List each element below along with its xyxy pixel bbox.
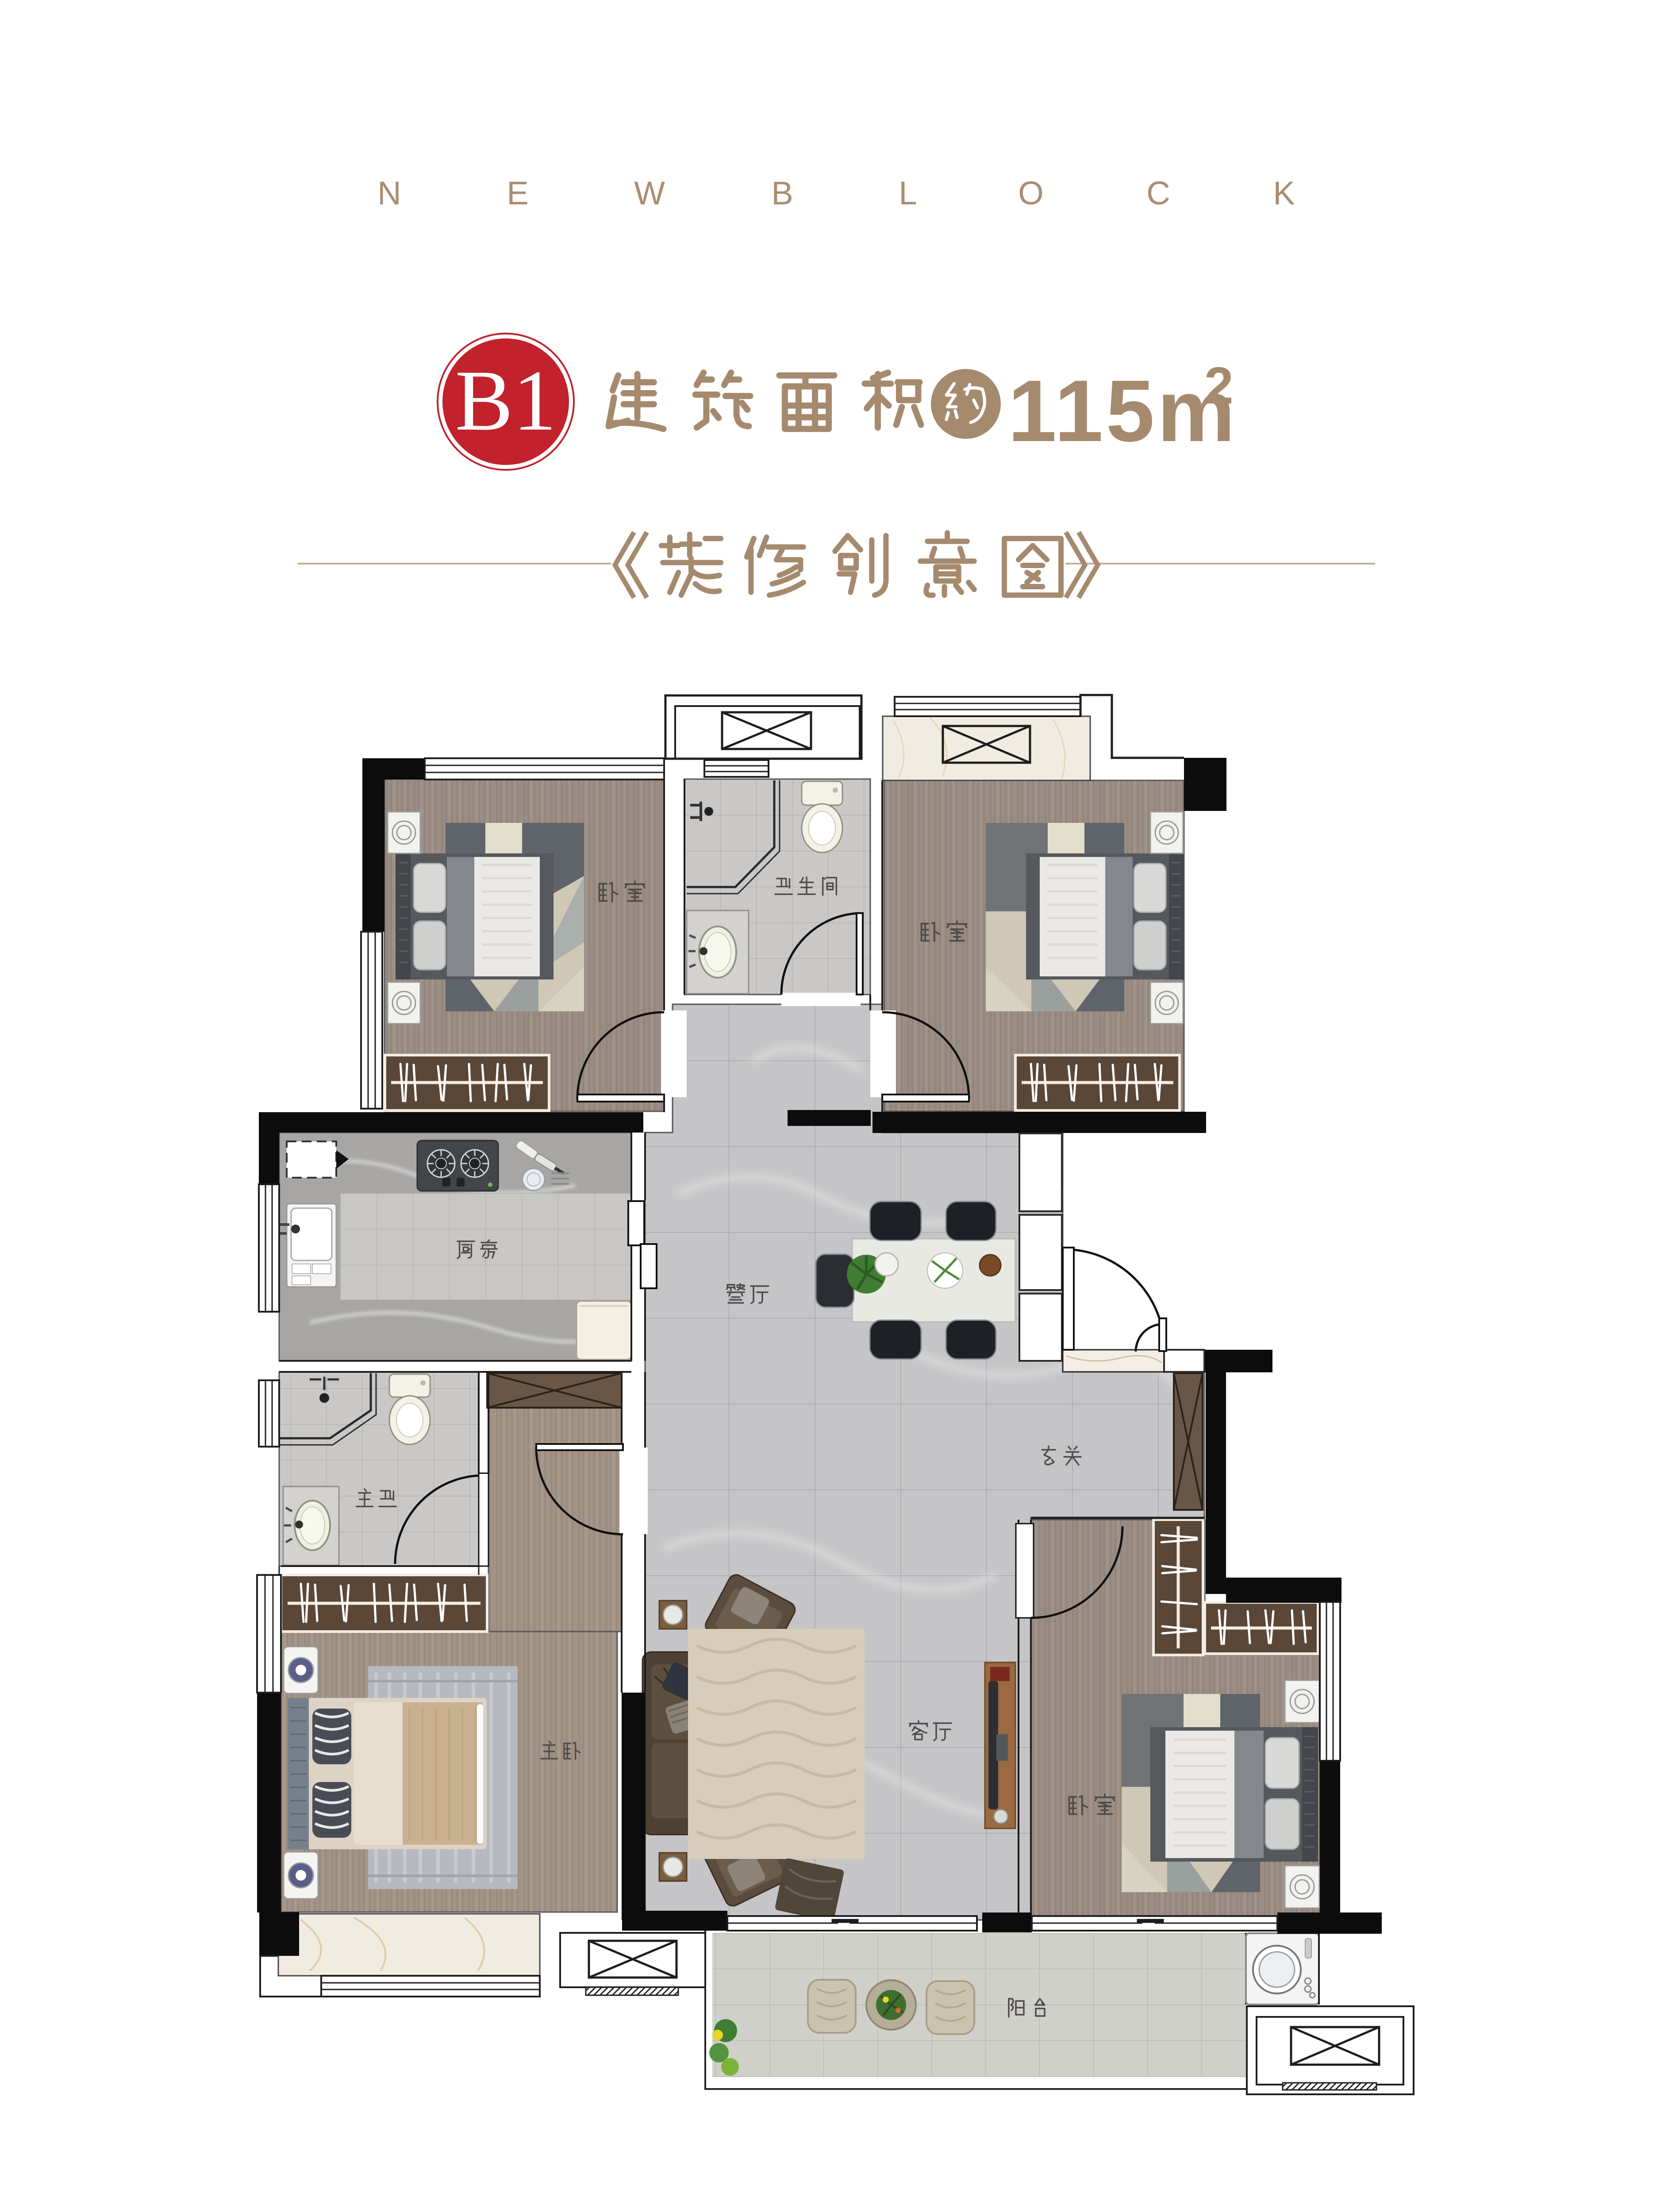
- svg-text:L: L: [899, 175, 917, 211]
- svg-text:B: B: [771, 175, 793, 211]
- svg-text:C: C: [1146, 175, 1170, 211]
- svg-text:E: E: [507, 175, 528, 211]
- svg-text:N: N: [377, 175, 401, 211]
- svg-text:K: K: [1273, 175, 1295, 211]
- svg-text:O: O: [1018, 175, 1044, 211]
- svg-text:W: W: [634, 175, 665, 211]
- svg-text:B1: B1: [455, 353, 557, 449]
- svg-text:2: 2: [1204, 357, 1234, 415]
- svg-text:115m: 115m: [1008, 362, 1238, 460]
